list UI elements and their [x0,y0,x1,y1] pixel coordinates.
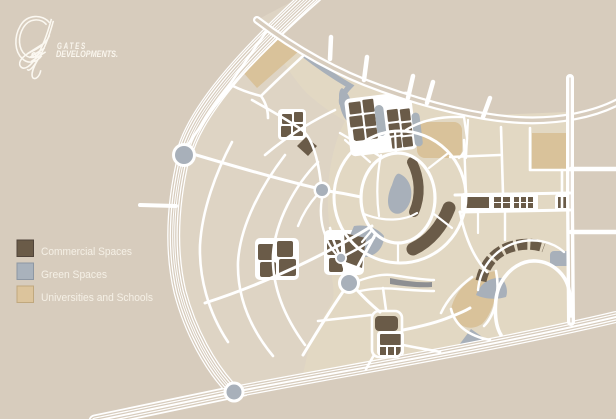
svg-text:Green Spaces: Green Spaces [41,269,107,281]
svg-text:Commercial Spaces: Commercial Spaces [41,246,132,258]
svg-text:Universities and Schools: Universities and Schools [41,292,153,304]
svg-text:DEVELOPMENTS.: DEVELOPMENTS. [56,49,118,60]
